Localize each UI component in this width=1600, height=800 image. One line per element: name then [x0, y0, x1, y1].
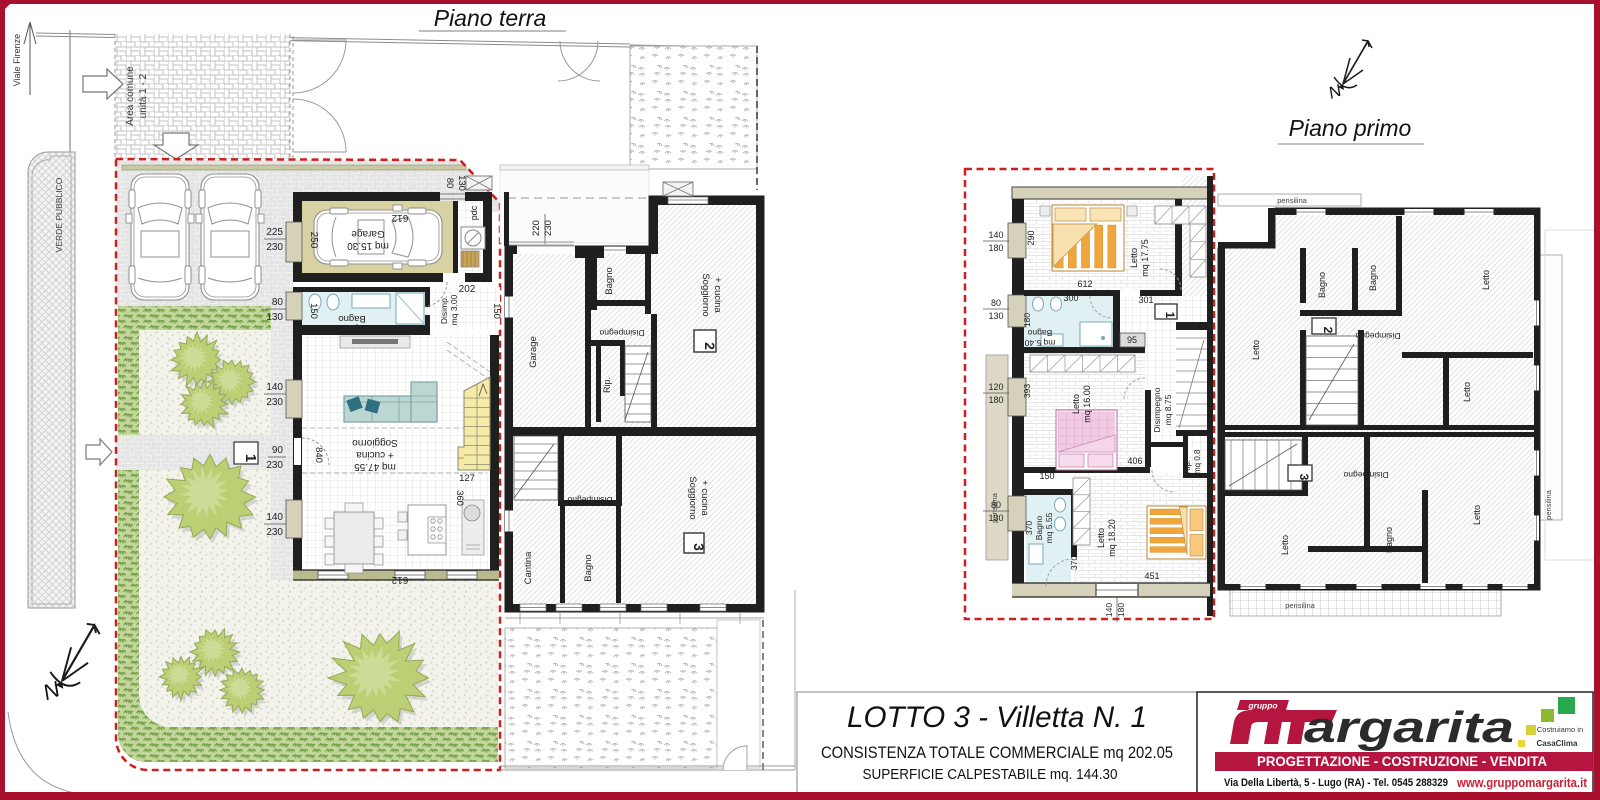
- svg-text:180: 180: [1022, 313, 1032, 327]
- svg-text:250: 250: [308, 232, 319, 249]
- svg-text:mq 0.8: mq 0.8: [1193, 449, 1202, 474]
- svg-text:180: 180: [988, 243, 1003, 253]
- svg-text:230: 230: [266, 527, 283, 538]
- svg-text:pensilina: pensilina: [1277, 196, 1307, 205]
- svg-text:130: 130: [988, 311, 1003, 321]
- svg-text:Bagno: Bagno: [583, 554, 594, 581]
- svg-text:Rip.: Rip.: [1183, 460, 1192, 474]
- svg-text:2: 2: [1321, 327, 1335, 334]
- svg-text:Bagno: Bagno: [1027, 328, 1052, 338]
- svg-text:Letto: Letto: [1251, 340, 1261, 360]
- svg-text:+ cucina: + cucina: [712, 277, 723, 313]
- svg-text:CasaClima: CasaClima: [1537, 739, 1578, 748]
- svg-text:argarita: argarita: [1304, 703, 1514, 752]
- svg-text:120: 120: [988, 382, 1003, 392]
- svg-text:unità 1 - 2: unità 1 - 2: [138, 73, 149, 118]
- svg-text:612: 612: [391, 212, 408, 223]
- svg-text:mq 15.30: mq 15.30: [347, 240, 389, 251]
- svg-text:Piano primo: Piano primo: [1289, 115, 1412, 141]
- svg-text:CONSISTENZA TOTALE COMMERCIALE: CONSISTENZA TOTALE COMMERCIALE mq 202.05: [821, 743, 1173, 762]
- svg-text:pensilina: pensilina: [1285, 601, 1315, 610]
- svg-text:840: 840: [313, 447, 324, 463]
- svg-text:Disimpegno: Disimpegno: [567, 495, 612, 505]
- svg-text:Disimpegno: Disimpegno: [1152, 387, 1162, 432]
- svg-text:Bagno: Bagno: [604, 267, 615, 294]
- svg-text:mq 5.40: mq 5.40: [1024, 338, 1055, 348]
- svg-text:140: 140: [1104, 603, 1114, 617]
- svg-text:mq 6.00: mq 6.00: [335, 323, 369, 334]
- svg-text:Piano terra: Piano terra: [434, 5, 547, 31]
- svg-text:LOTTO 3 - Villetta N. 1: LOTTO 3 - Villetta N. 1: [847, 701, 1147, 734]
- svg-text:80: 80: [272, 297, 284, 308]
- svg-text:Cantina: Cantina: [523, 551, 534, 584]
- svg-text:127: 127: [459, 473, 475, 484]
- svg-text:SUPERFICIE CALPESTABILE mq. 1: SUPERFICIE CALPESTABILE mq. 144.30: [863, 767, 1118, 783]
- svg-text:Disimpegno: Disimpegno: [599, 328, 644, 338]
- svg-text:130: 130: [456, 175, 467, 191]
- svg-text:220: 220: [531, 220, 542, 236]
- svg-text:140: 140: [266, 382, 283, 393]
- svg-text:mq 3.00: mq 3.00: [449, 294, 459, 325]
- svg-text:Letto: Letto: [1096, 528, 1106, 548]
- svg-text:140: 140: [988, 230, 1003, 240]
- svg-text:230: 230: [266, 460, 283, 471]
- svg-text:Bagno: Bagno: [1384, 527, 1394, 553]
- svg-text:3: 3: [691, 543, 707, 551]
- svg-text:2: 2: [702, 342, 718, 350]
- svg-text:451: 451: [1144, 571, 1159, 581]
- svg-text:230: 230: [266, 397, 283, 408]
- svg-text:mq 8.75: mq 8.75: [1163, 394, 1173, 425]
- svg-text:Bagno: Bagno: [1034, 515, 1044, 540]
- svg-text:80: 80: [444, 178, 455, 189]
- svg-text:mq 47.55: mq 47.55: [354, 461, 396, 472]
- svg-text:Bagno: Bagno: [338, 313, 365, 324]
- svg-text:PROGETTAZIONE - COSTRUZIONE: PROGETTAZIONE - COSTRUZIONE - VENDITA: [1257, 754, 1547, 769]
- svg-text:180: 180: [988, 395, 1003, 405]
- svg-text:230: 230: [266, 242, 283, 253]
- svg-text:360: 360: [454, 490, 465, 506]
- svg-text:1: 1: [242, 454, 259, 462]
- svg-text:130: 130: [266, 312, 283, 323]
- svg-text:3: 3: [1297, 474, 1311, 481]
- svg-text:Garage: Garage: [528, 336, 539, 368]
- svg-text:230: 230: [543, 220, 554, 236]
- svg-text:mq 5.55: mq 5.55: [1044, 512, 1054, 543]
- svg-text:Letto: Letto: [1472, 505, 1482, 525]
- svg-text:301: 301: [1138, 295, 1153, 305]
- svg-text:Letto: Letto: [1071, 394, 1081, 414]
- svg-text:Disimp.: Disimp.: [439, 296, 449, 324]
- svg-text:Via Della Libertà, 5 - Lugo (R: Via Della Libertà, 5 - Lugo (RA) - Tel. …: [1224, 777, 1448, 789]
- svg-text:www.gruppomargarita.it: www.gruppomargarita.it: [1456, 775, 1587, 790]
- svg-text:Disimpegno: Disimpegno: [1343, 470, 1388, 480]
- svg-text:90: 90: [272, 445, 284, 456]
- svg-text:Disimpegno: Disimpegno: [1355, 331, 1400, 341]
- svg-text:Soggiorno: Soggiorno: [687, 476, 698, 519]
- svg-text:Letto: Letto: [1129, 248, 1139, 268]
- svg-text:130: 130: [988, 513, 1003, 523]
- svg-text:225: 225: [266, 227, 283, 238]
- svg-text:mq 18.20: mq 18.20: [1107, 519, 1117, 557]
- svg-text:Area comune: Area comune: [125, 66, 136, 126]
- svg-text:202: 202: [459, 284, 476, 295]
- svg-text:Costruiamo in: Costruiamo in: [1537, 725, 1583, 734]
- svg-text:290: 290: [1026, 230, 1036, 245]
- svg-text:Rip.: Rip.: [602, 377, 612, 393]
- svg-text:180: 180: [1116, 603, 1126, 617]
- svg-text:612: 612: [391, 574, 408, 585]
- svg-text:Garage: Garage: [351, 228, 385, 239]
- svg-text:1: 1: [1163, 312, 1177, 319]
- svg-text:Letto: Letto: [1280, 535, 1290, 555]
- svg-text:140: 140: [266, 512, 283, 523]
- svg-text:80: 80: [991, 298, 1001, 308]
- svg-text:300: 300: [1063, 293, 1078, 303]
- svg-text:Letto: Letto: [1481, 270, 1491, 290]
- svg-text:+ cucina: + cucina: [356, 449, 394, 460]
- svg-text:370: 370: [1069, 556, 1079, 570]
- svg-text:612: 612: [1077, 279, 1092, 289]
- svg-text:VERDE PUBBLICO: VERDE PUBBLICO: [54, 177, 64, 252]
- svg-text:gruppo: gruppo: [1247, 701, 1277, 711]
- svg-text:80: 80: [991, 500, 1001, 510]
- svg-text:Soggiorno: Soggiorno: [700, 273, 711, 316]
- svg-text:150: 150: [491, 303, 502, 319]
- svg-text:Letto: Letto: [1462, 382, 1472, 402]
- svg-text:150: 150: [308, 303, 319, 319]
- svg-text:406: 406: [1127, 456, 1142, 466]
- svg-text:mq 16.00: mq 16.00: [1082, 385, 1092, 423]
- svg-text:370: 370: [1024, 521, 1034, 535]
- svg-text:95: 95: [1127, 335, 1137, 345]
- svg-text:pdc: pdc: [469, 205, 479, 220]
- svg-text:Viale Firenze: Viale Firenze: [12, 34, 22, 86]
- svg-text:150: 150: [1039, 471, 1054, 481]
- svg-text:Bagno: Bagno: [1368, 265, 1378, 291]
- svg-text:mq 17.75: mq 17.75: [1140, 239, 1150, 277]
- svg-text:393: 393: [1022, 384, 1032, 398]
- svg-text:+ cucina: + cucina: [699, 480, 710, 516]
- svg-text:Soggiorno: Soggiorno: [352, 437, 398, 448]
- svg-text:Bagno: Bagno: [1317, 272, 1327, 298]
